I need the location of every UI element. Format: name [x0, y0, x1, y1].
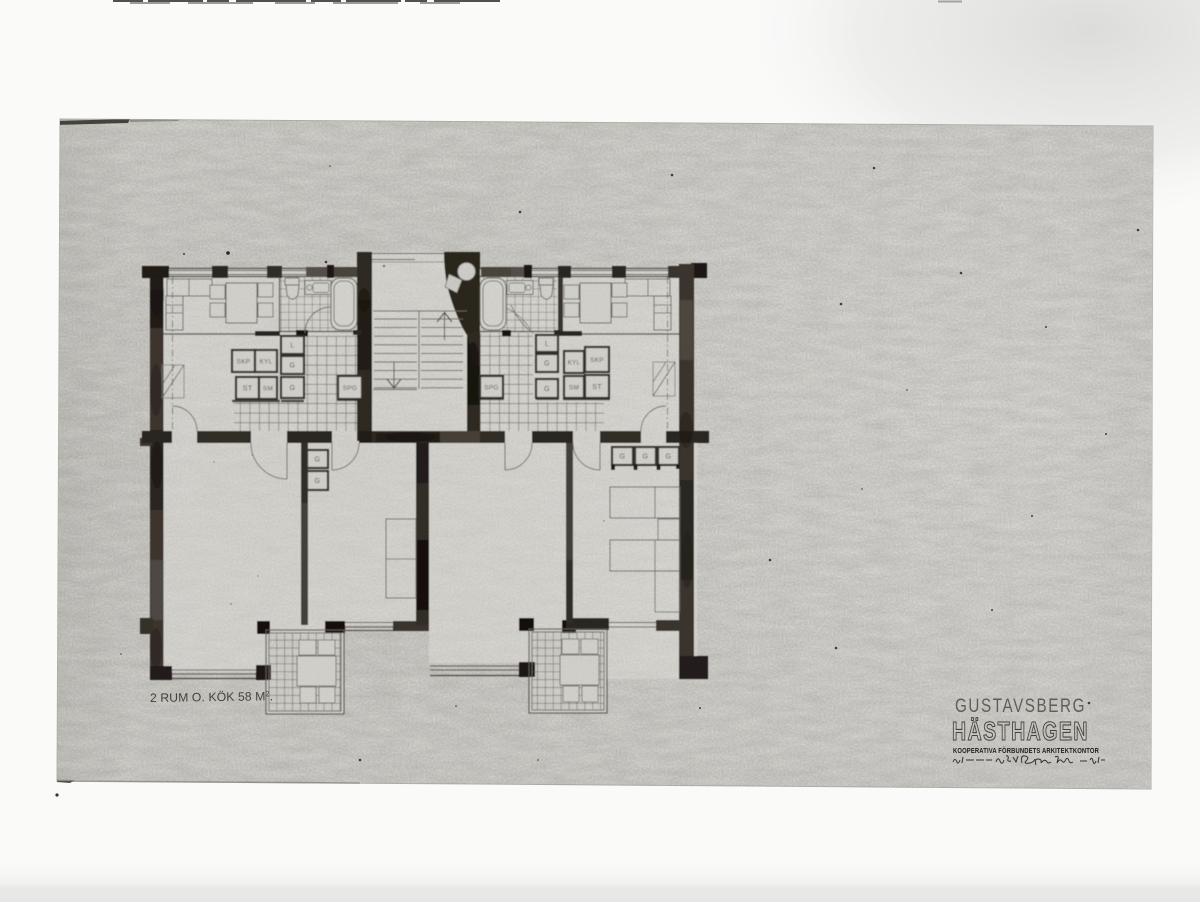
- svg-text:2 RUM O. KÖK 58 M2.: 2 RUM O. KÖK 58 M2.: [150, 689, 273, 705]
- svg-text:KOOPERATIVA FÖRBUNDETS ARKITEK: KOOPERATIVA FÖRBUNDETS ARKITEKTKONTOR: [953, 746, 1099, 755]
- svg-text:HÄSTHAGEN: HÄSTHAGEN: [952, 716, 1089, 746]
- svg-text:GUSTAVSBERG: GUSTAVSBERG: [955, 696, 1086, 717]
